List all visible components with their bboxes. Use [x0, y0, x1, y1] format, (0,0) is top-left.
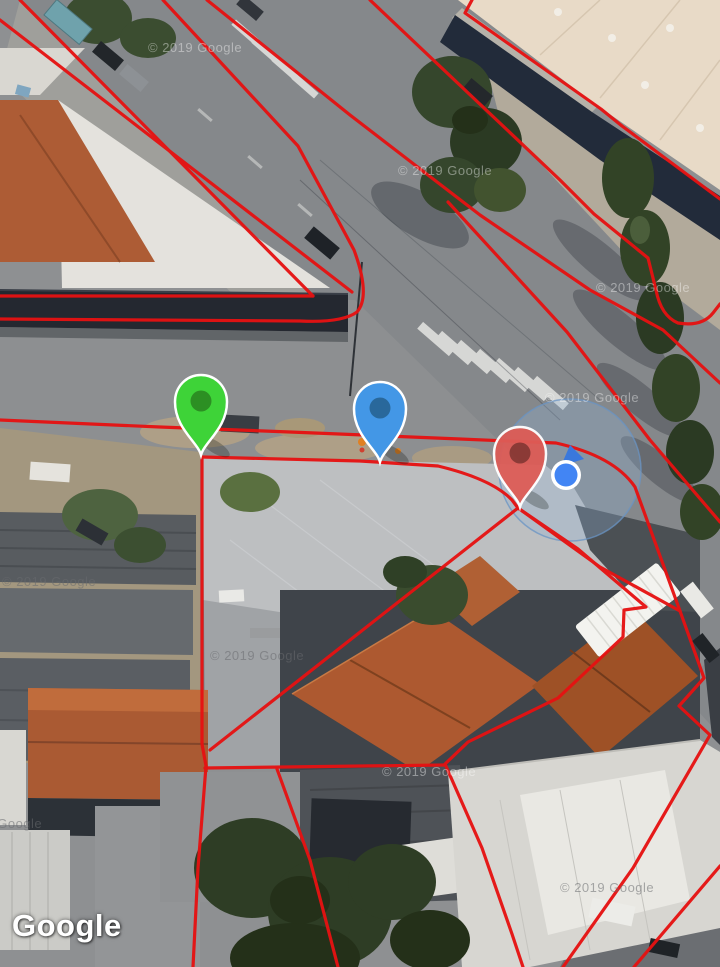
google-logo[interactable]: Google — [12, 908, 122, 944]
pin-head-dot — [191, 391, 212, 412]
satellite-basemap — [0, 0, 720, 967]
pin-head-dot — [370, 398, 391, 419]
location-dot — [555, 464, 578, 487]
pin-head-dot — [510, 443, 531, 464]
map-viewport[interactable]: © 2019 Google © 2019 Google © 2019 Googl… — [0, 0, 720, 967]
